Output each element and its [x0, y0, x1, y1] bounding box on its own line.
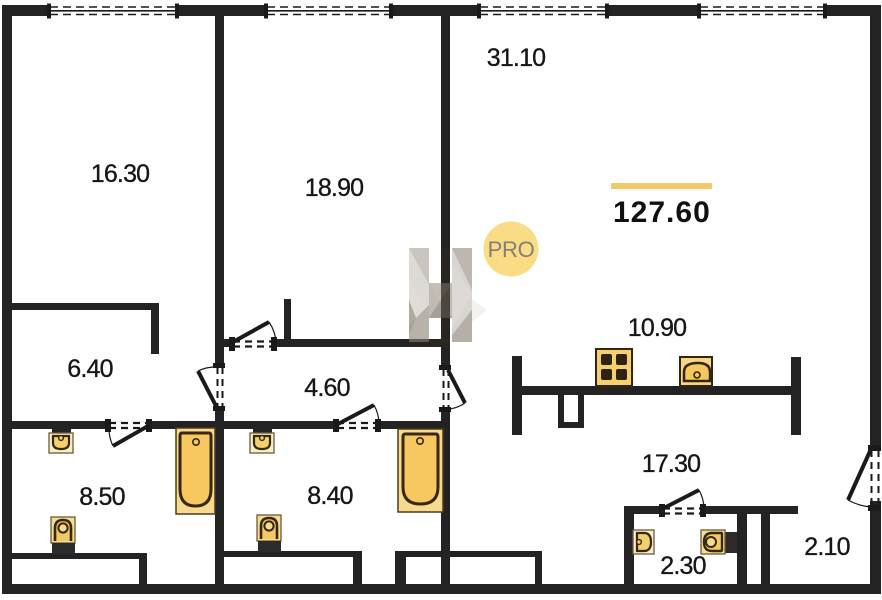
svg-text:2.10: 2.10: [804, 533, 849, 561]
svg-text:16.30: 16.30: [91, 160, 150, 188]
svg-text:18.90: 18.90: [305, 174, 364, 202]
svg-text:17.30: 17.30: [642, 450, 701, 478]
svg-text:8.50: 8.50: [79, 483, 124, 511]
svg-text:127.60: 127.60: [613, 196, 711, 229]
svg-text:31.10: 31.10: [487, 44, 546, 72]
svg-text:8.40: 8.40: [307, 482, 352, 510]
svg-text:PRO: PRO: [488, 237, 535, 262]
svg-text:6.40: 6.40: [67, 355, 112, 383]
svg-text:10.90: 10.90: [628, 314, 687, 342]
svg-text:2.30: 2.30: [660, 552, 705, 580]
svg-text:4.60: 4.60: [304, 374, 349, 402]
